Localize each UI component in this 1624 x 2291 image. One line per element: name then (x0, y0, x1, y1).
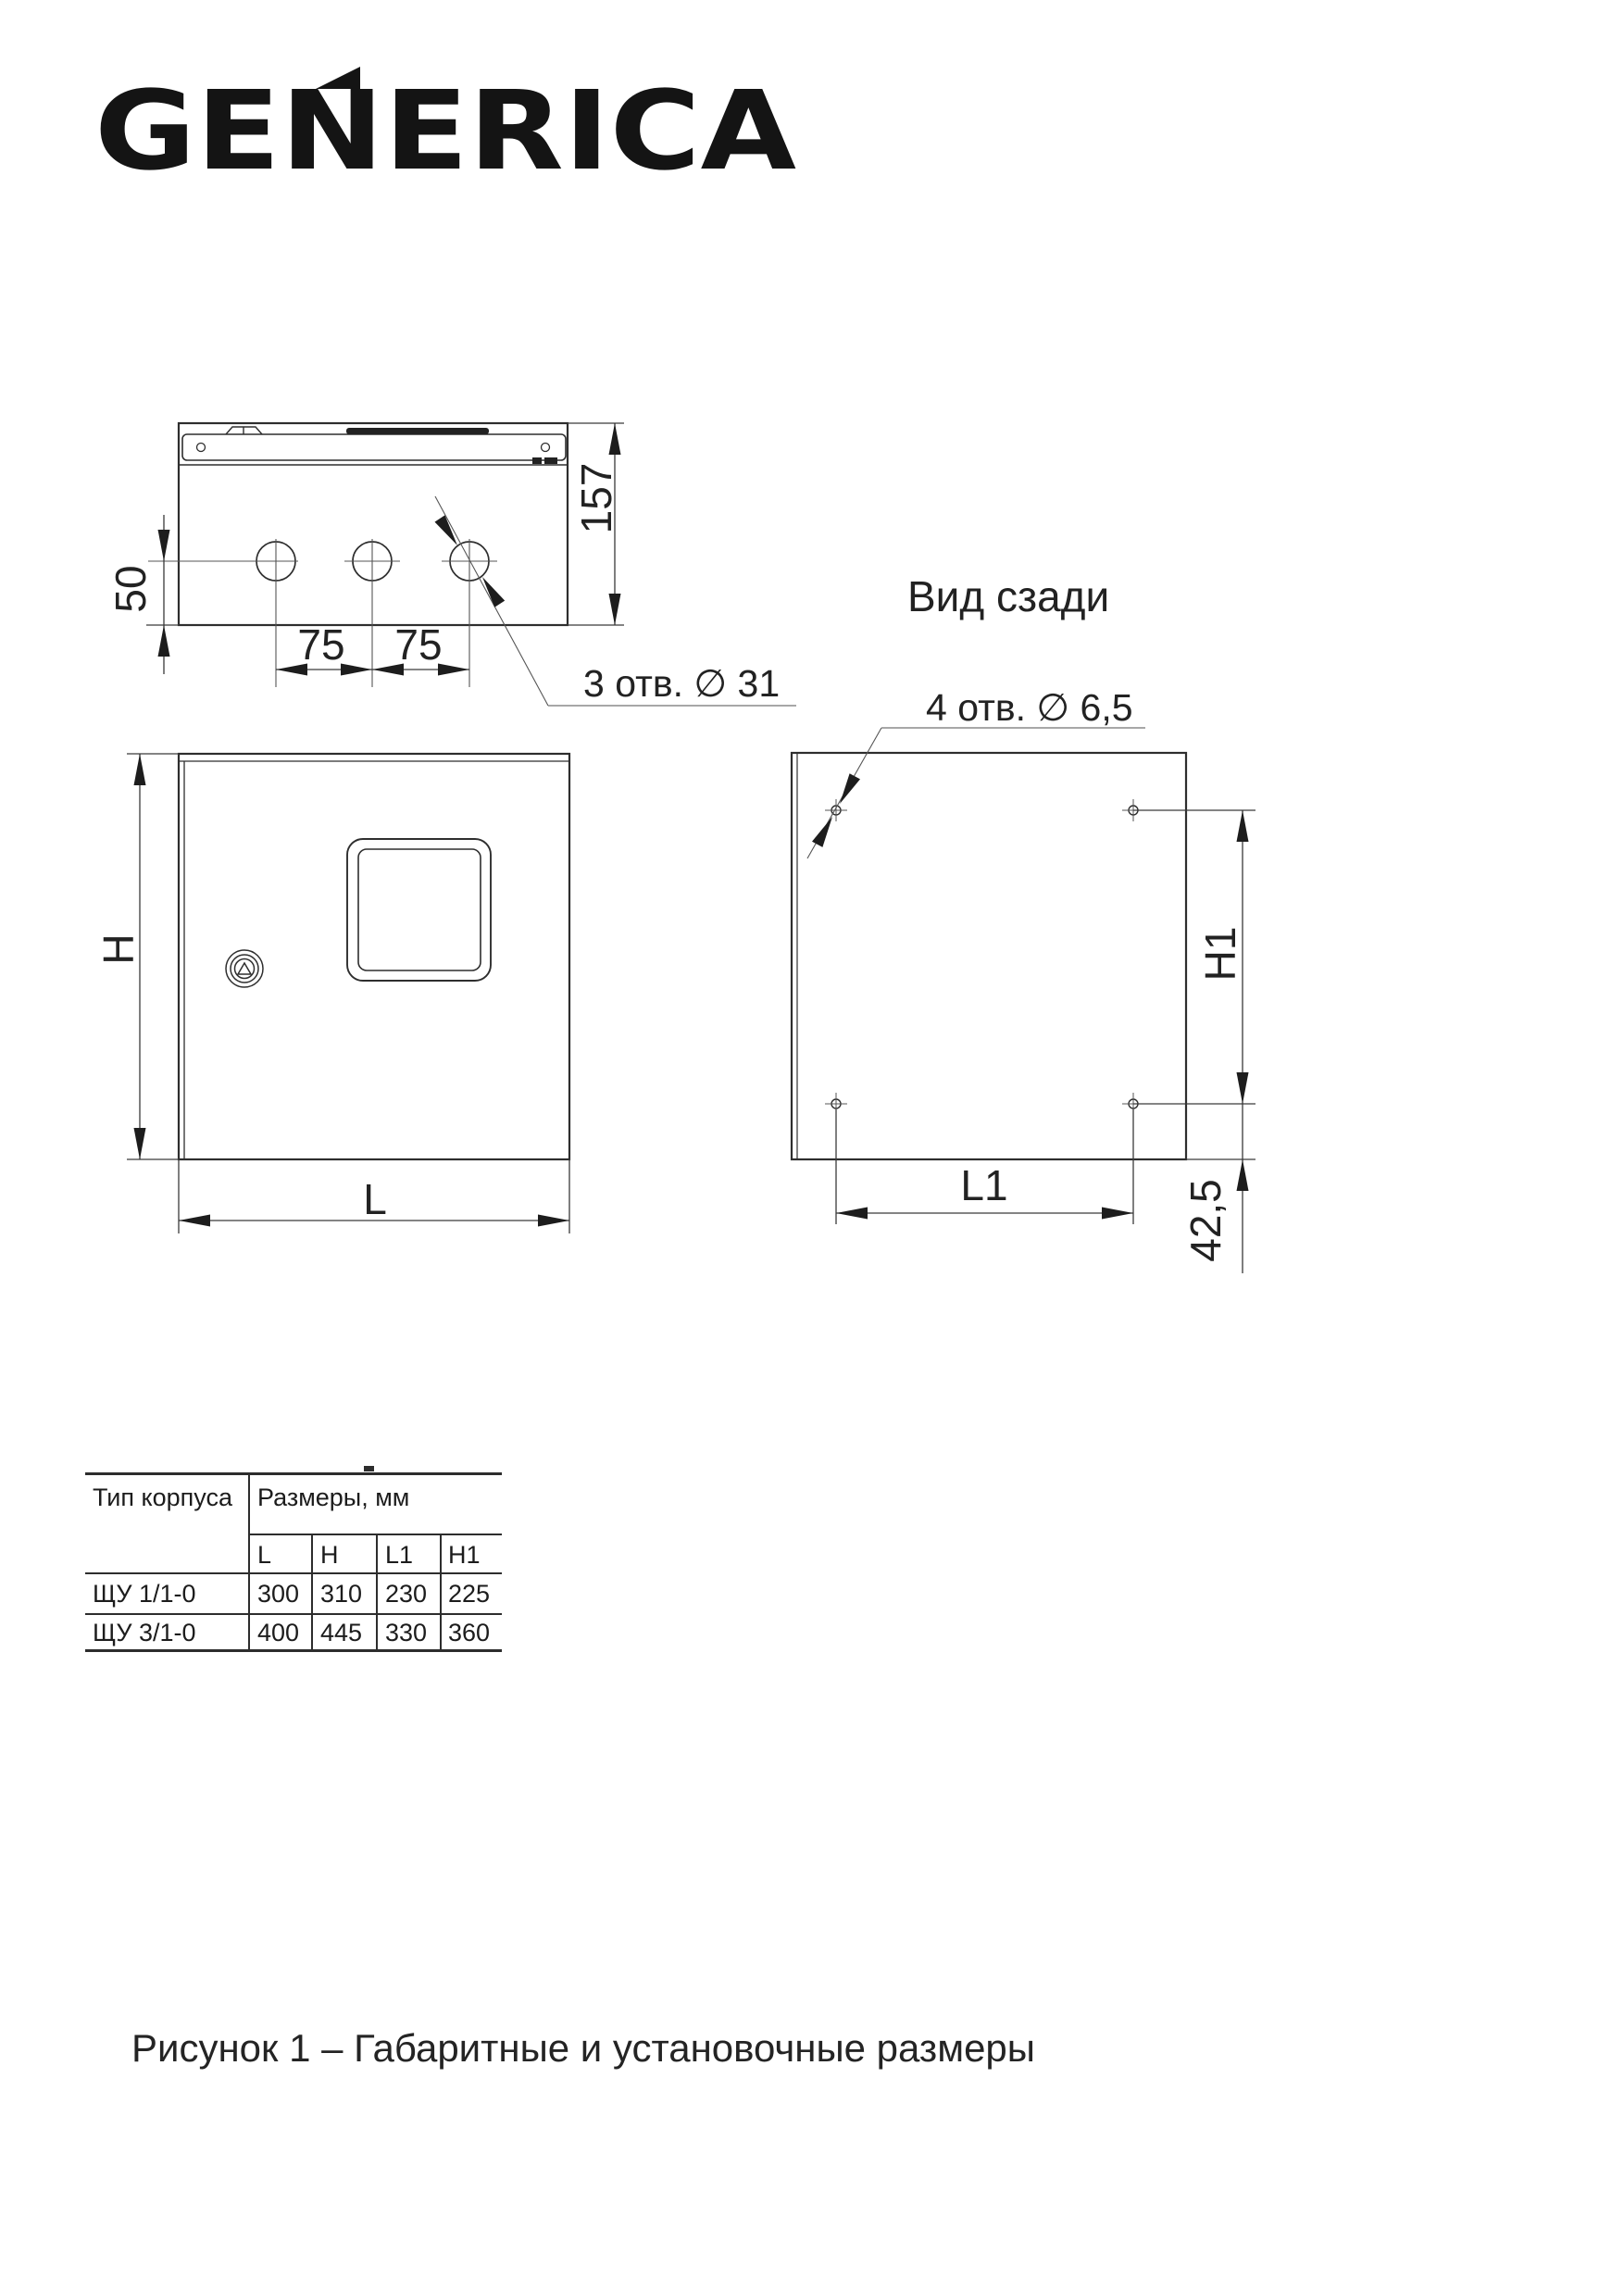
table-row-type: ЩУ 3/1-0 (93, 1619, 196, 1647)
rear-holes-note: 4 отв. ∅ 6,5 (926, 686, 1133, 729)
dim-75-label-1: 75 (297, 620, 344, 669)
front-view (179, 754, 569, 1159)
dim-L1-label: L1 (960, 1161, 1007, 1209)
table-rule (248, 1472, 250, 1652)
table-cell: 230 (385, 1580, 427, 1609)
screw-icon (197, 444, 206, 452)
dim-50-label: 50 (106, 565, 155, 612)
dim-75-label-2: 75 (394, 620, 442, 669)
table-rule (311, 1534, 313, 1652)
rear-view-panel (792, 753, 1186, 1159)
table-cell: 330 (385, 1619, 427, 1647)
print-artifact (364, 1466, 374, 1471)
dim-H1-label: H1 (1196, 927, 1244, 982)
rear-view (792, 753, 1186, 1159)
table-subheader-H1: H1 (448, 1541, 481, 1570)
front-view-dimensions (127, 754, 569, 1233)
door-lock-icon (226, 950, 263, 987)
table-cell: 310 (320, 1580, 362, 1609)
dim-L-label: L (363, 1175, 387, 1223)
table-subheader-H: H (320, 1541, 339, 1570)
dim-157-label: 157 (572, 463, 620, 534)
table-cell: 300 (257, 1580, 299, 1609)
dimensions-table: Тип корпуса Размеры, мм L H L1 H1 ЩУ 1/1… (85, 1472, 502, 1652)
logo-text: GENERICA (94, 67, 796, 194)
table-subheader-L1: L1 (385, 1541, 413, 1570)
top-view-body (179, 423, 568, 625)
table-header-dims: Размеры, мм (257, 1484, 409, 1512)
top-view (148, 423, 568, 687)
dim-H-label: H (94, 933, 143, 964)
table-header-type: Тип корпуса (93, 1484, 232, 1512)
table-subheader-L: L (257, 1541, 271, 1570)
top-view-lid (182, 434, 566, 460)
rear-view-arrowheads (812, 773, 1249, 1219)
table-rule (248, 1534, 502, 1535)
handle-icon (346, 428, 489, 434)
table-rule (85, 1472, 502, 1475)
screw-icon (542, 444, 550, 452)
top-holes-note: 3 отв. ∅ 31 (583, 662, 780, 705)
table-cell: 225 (448, 1580, 490, 1609)
figure-caption: Рисунок 1 – Габаритные и установочные ра… (131, 2026, 1035, 2071)
mounting-holes (831, 806, 1138, 1108)
rear-view-title: Вид сзади (907, 572, 1109, 620)
table-cell: 400 (257, 1619, 299, 1647)
table-rule (440, 1534, 442, 1652)
table-rule (376, 1534, 378, 1652)
table-cell: 445 (320, 1619, 362, 1647)
front-view-arrowheads (134, 754, 570, 1227)
table-row-type: ЩУ 1/1-0 (93, 1580, 196, 1609)
dim-42-5-label: 42,5 (1181, 1179, 1230, 1262)
meter-window (347, 839, 491, 981)
table-cell: 360 (448, 1619, 490, 1647)
datasheet-page: GENERICA (0, 0, 1624, 2291)
dimension-drawing: 157 50 75 75 3 отв. ∅ 31 (0, 352, 1624, 1343)
brand-logo: GENERICA (0, 37, 926, 194)
